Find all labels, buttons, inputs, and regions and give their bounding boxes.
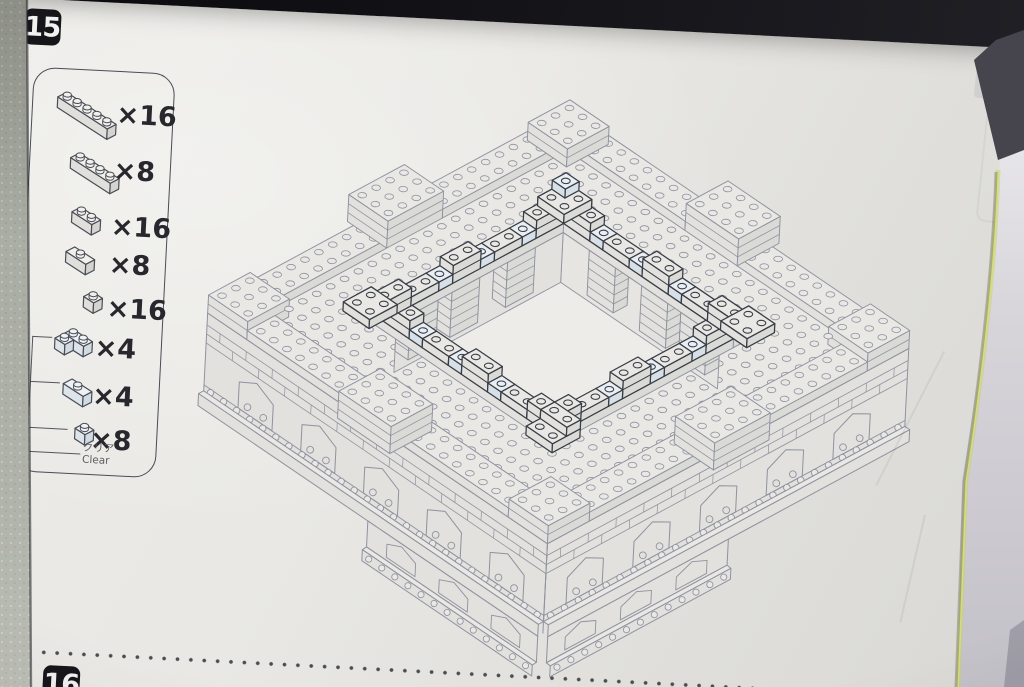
- next-page-edge: [958, 120, 1024, 687]
- clear-note-en: Clear: [82, 454, 114, 468]
- brick-quantity-label: ×4: [92, 381, 135, 414]
- dark-top-right-corner: [974, 30, 1024, 160]
- brick-quantity-label: ×8: [108, 249, 151, 282]
- manual-page: 15 ×16 ×8 ×16 ×8 ×16 ×4 ×4 ×8 クリア Clear …: [0, 0, 1024, 687]
- brick-quantity-label: ×8: [113, 155, 156, 188]
- step-number-16: 16: [42, 665, 81, 687]
- parts-list-item: ×16: [31, 84, 174, 145]
- photo-frame: 15 ×16 ×8 ×16 ×8 ×16 ×4 ×4 ×8 クリア Clear …: [0, 0, 1024, 687]
- parts-list-item: ×8: [28, 140, 171, 201]
- brick-1x1-icon: [76, 284, 110, 325]
- assembly-diagram: [144, 58, 965, 687]
- corner-brick-2x2-icon: [46, 321, 101, 374]
- brick-quantity-label: ×16: [116, 99, 178, 133]
- brick-quantity-label: ×4: [94, 333, 137, 366]
- page-edge-curl: [934, 0, 1024, 687]
- clear-parts-note: クリア Clear: [82, 442, 115, 468]
- background-wall-strip: [0, 0, 46, 687]
